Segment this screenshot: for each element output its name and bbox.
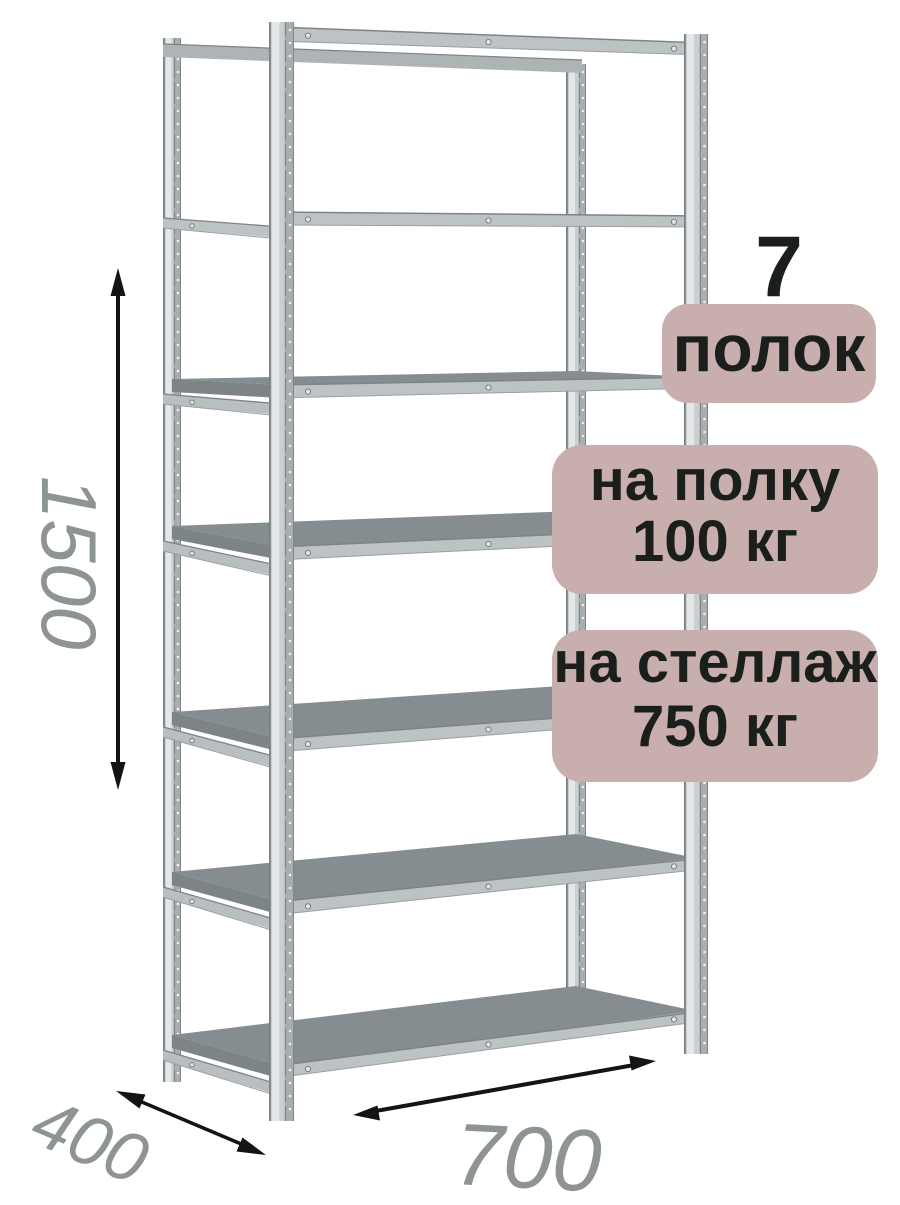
svg-text:750 кг: 750 кг — [632, 694, 798, 759]
svg-text:100 кг: 100 кг — [632, 509, 798, 574]
svg-text:на полку: на полку — [590, 448, 841, 513]
svg-text:на стеллаж: на стеллаж — [553, 630, 877, 695]
svg-text:7: 7 — [755, 219, 803, 315]
svg-text:полок: полок — [673, 311, 867, 385]
svg-text:1500: 1500 — [25, 476, 113, 650]
svg-text:700: 700 — [452, 1104, 604, 1200]
